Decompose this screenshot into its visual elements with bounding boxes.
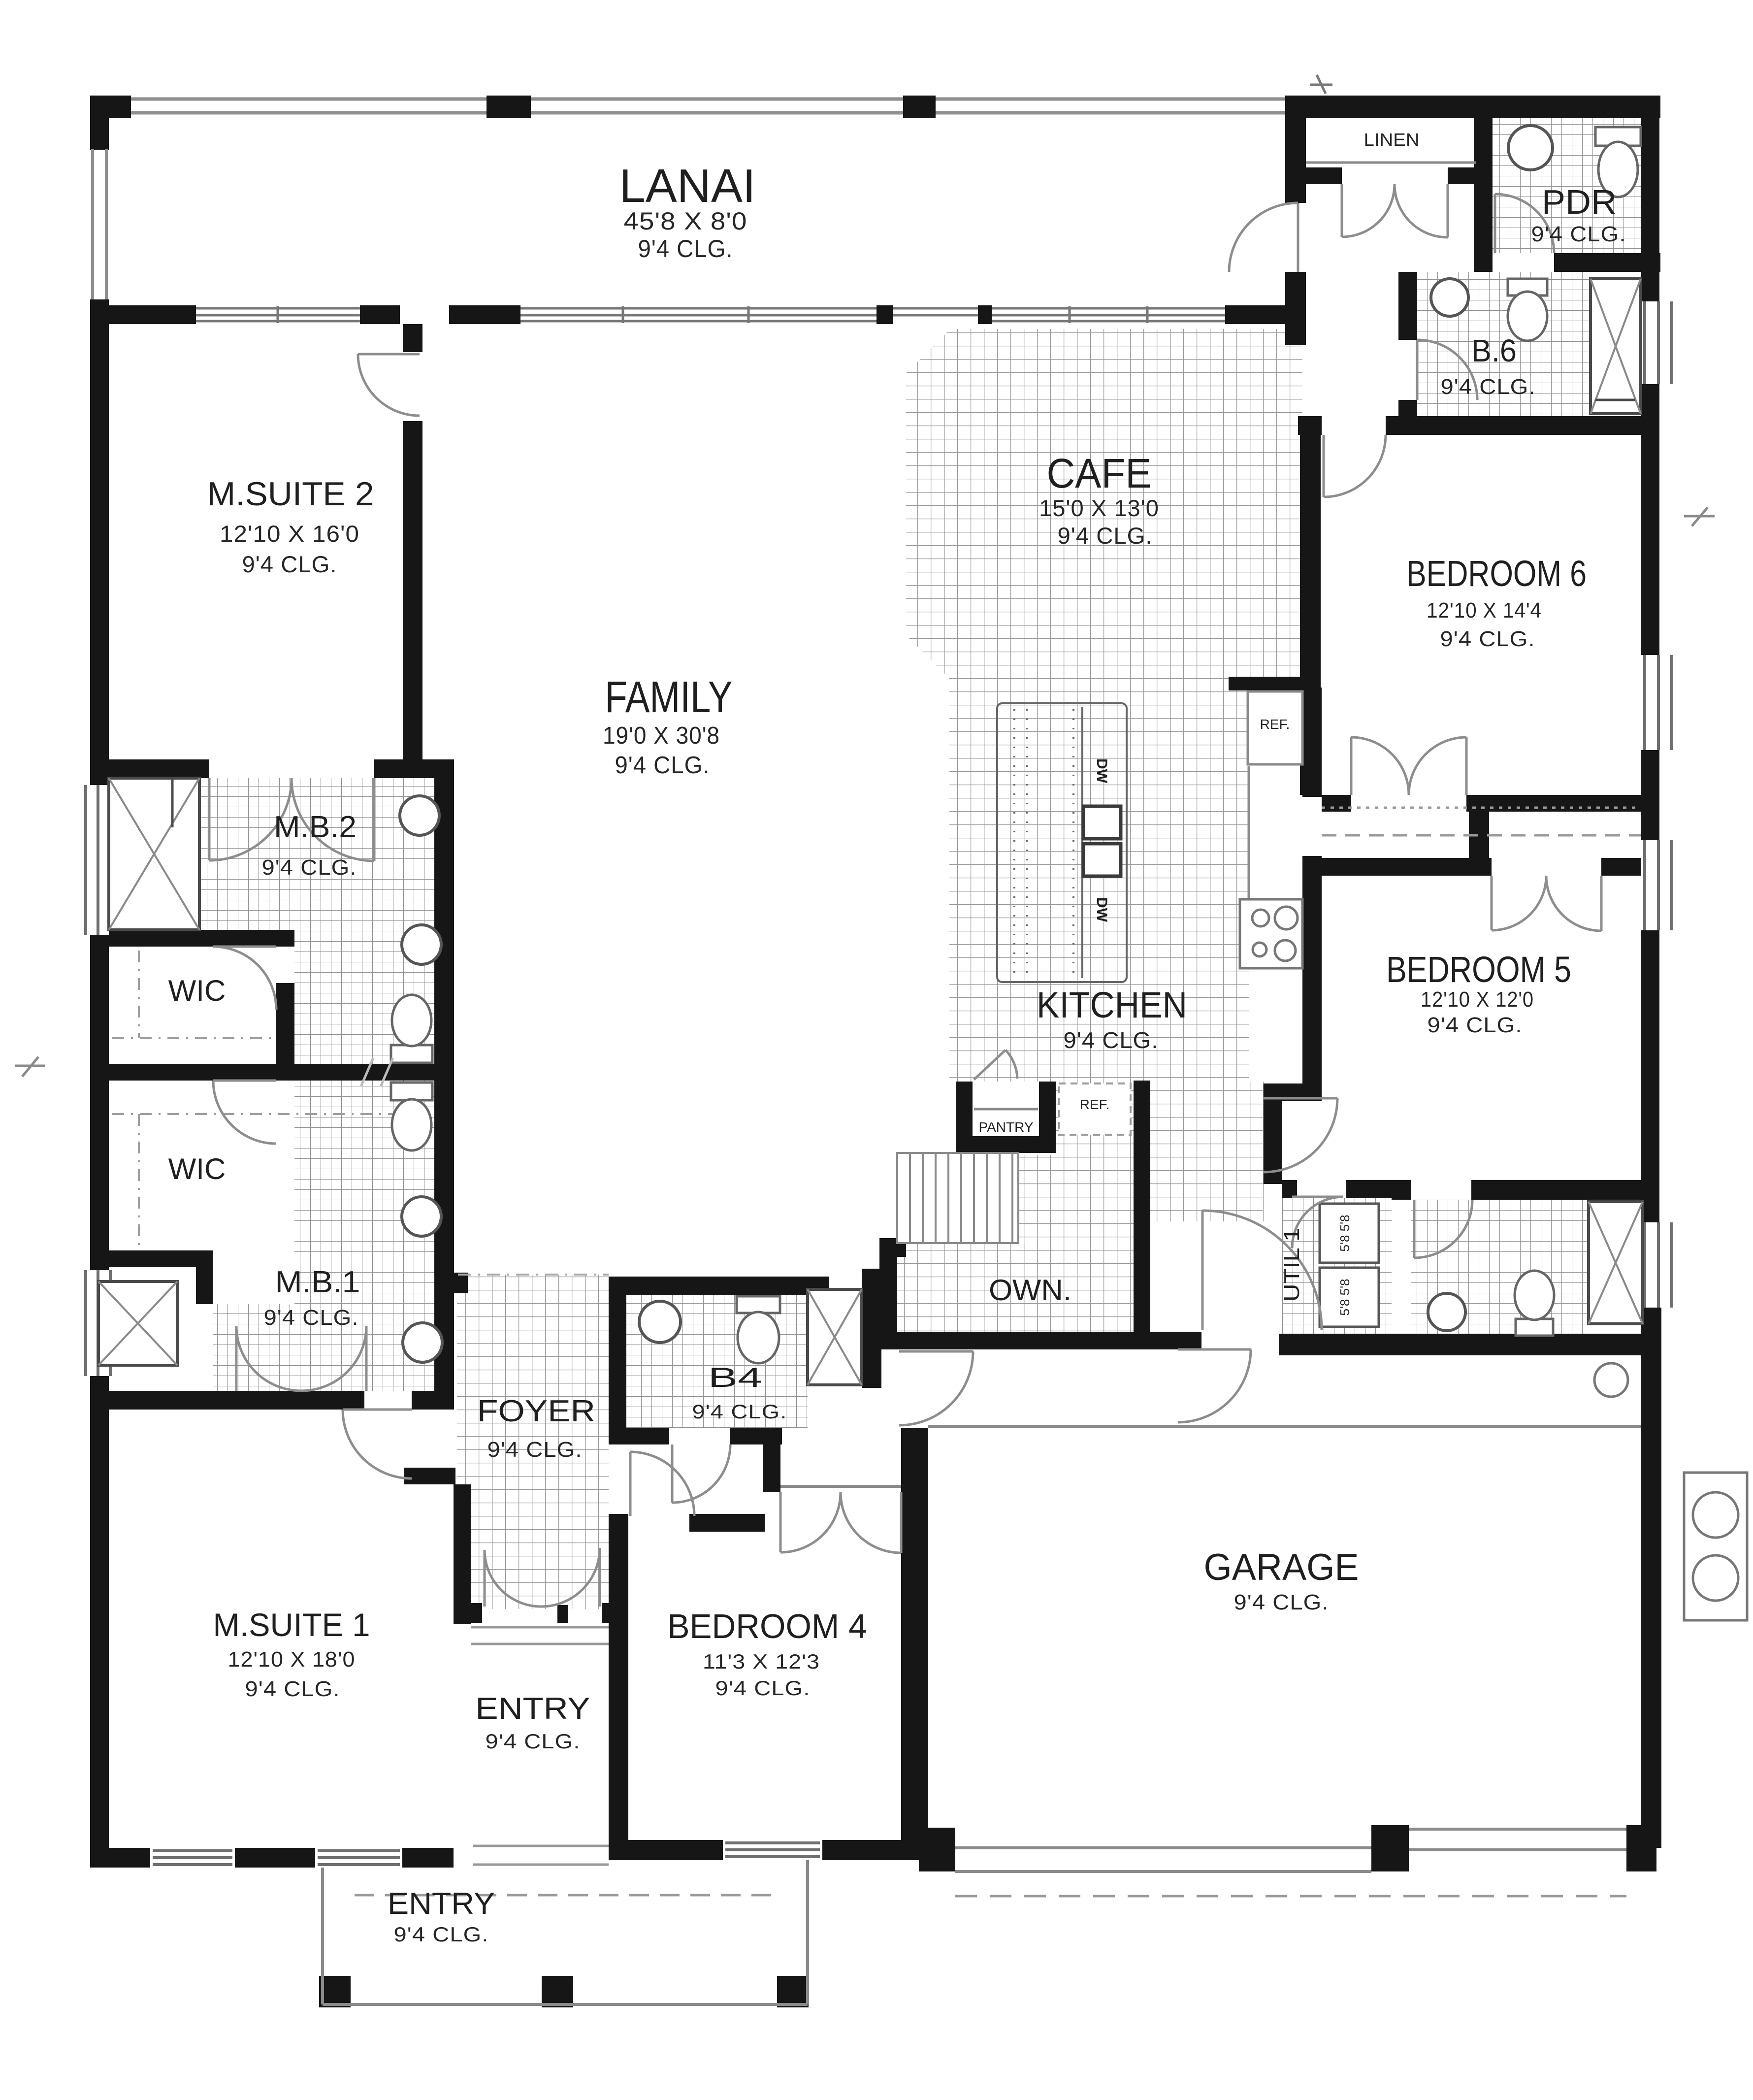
svg-text:9'4 CLG.: 9'4 CLG. bbox=[615, 752, 710, 779]
svg-text:9'4 CLG.: 9'4 CLG. bbox=[1440, 627, 1535, 651]
svg-text:REF.: REF. bbox=[1260, 717, 1290, 732]
svg-text:9'4 CLG.: 9'4 CLG. bbox=[1234, 1590, 1329, 1614]
svg-text:9'4 CLG.: 9'4 CLG. bbox=[1428, 1013, 1523, 1037]
svg-text:PANTRY: PANTRY bbox=[979, 1119, 1034, 1135]
svg-text:9'4 CLG.: 9'4 CLG. bbox=[486, 1730, 581, 1753]
svg-text:12'10 X 16'0: 12'10 X 16'0 bbox=[220, 521, 359, 547]
svg-text:11'3 X 12'3: 11'3 X 12'3 bbox=[703, 1650, 820, 1673]
svg-text:9'4 CLG.: 9'4 CLG. bbox=[715, 1676, 811, 1700]
svg-text:9'4 CLG.: 9'4 CLG. bbox=[242, 551, 337, 577]
svg-text:9'4 CLG.: 9'4 CLG. bbox=[262, 855, 357, 880]
svg-text:ENTRY: ENTRY bbox=[476, 1692, 590, 1726]
svg-text:WIC: WIC bbox=[168, 1152, 226, 1185]
svg-text:M.B.2: M.B.2 bbox=[274, 810, 357, 844]
svg-text:M.SUITE 1: M.SUITE 1 bbox=[213, 1607, 370, 1643]
svg-text:DW: DW bbox=[1094, 758, 1110, 784]
svg-text:ENTRY: ENTRY bbox=[388, 1887, 495, 1921]
svg-text:9'4 CLG.: 9'4 CLG. bbox=[487, 1438, 583, 1462]
svg-text:15'0 X 13'0: 15'0 X 13'0 bbox=[1039, 495, 1159, 521]
svg-text:B4: B4 bbox=[708, 1362, 762, 1393]
svg-text:FAMILY: FAMILY bbox=[605, 673, 733, 722]
svg-text:B.6: B.6 bbox=[1471, 333, 1517, 368]
svg-text:9'4 CLG.: 9'4 CLG. bbox=[1531, 222, 1626, 246]
svg-text:GARAGE: GARAGE bbox=[1204, 1546, 1359, 1588]
svg-text:19'0 X 30'8: 19'0 X 30'8 bbox=[603, 722, 720, 749]
svg-text:5'8 5'8: 5'8 5'8 bbox=[1337, 1215, 1352, 1252]
svg-text:FOYER: FOYER bbox=[477, 1394, 595, 1428]
svg-text:PDR: PDR bbox=[1542, 183, 1617, 221]
svg-text:OWN.: OWN. bbox=[989, 1274, 1071, 1307]
svg-text:CAFE: CAFE bbox=[1047, 450, 1152, 496]
svg-text:BEDROOM 6: BEDROOM 6 bbox=[1406, 553, 1587, 594]
svg-text:9'4 CLG.: 9'4 CLG. bbox=[638, 235, 733, 262]
svg-text:12'10 X 12'0: 12'10 X 12'0 bbox=[1421, 987, 1534, 1012]
svg-text:45'8 X 8'0: 45'8 X 8'0 bbox=[624, 207, 747, 235]
svg-text:LANAI: LANAI bbox=[619, 160, 756, 212]
svg-text:BEDROOM 4: BEDROOM 4 bbox=[668, 1607, 867, 1645]
svg-text:5'8 5'8: 5'8 5'8 bbox=[1337, 1279, 1352, 1316]
svg-text:LINEN: LINEN bbox=[1364, 130, 1420, 150]
svg-text:UTIL 1: UTIL 1 bbox=[1280, 1228, 1304, 1302]
svg-text:KITCHEN: KITCHEN bbox=[1037, 984, 1187, 1025]
svg-text:M.SUITE 2: M.SUITE 2 bbox=[207, 475, 374, 513]
svg-text:DW: DW bbox=[1094, 897, 1110, 922]
svg-text:M.B.1: M.B.1 bbox=[275, 1265, 360, 1299]
svg-text:9'4 CLG.: 9'4 CLG. bbox=[245, 1677, 340, 1701]
svg-text:12'10 X 18'0: 12'10 X 18'0 bbox=[228, 1647, 356, 1672]
svg-text:REF.: REF. bbox=[1080, 1097, 1110, 1112]
svg-text:WIC: WIC bbox=[168, 974, 226, 1007]
svg-text:BEDROOM 5: BEDROOM 5 bbox=[1386, 949, 1571, 990]
svg-text:9'4 CLG.: 9'4 CLG. bbox=[264, 1306, 359, 1330]
svg-text:9'4 CLG.: 9'4 CLG. bbox=[692, 1401, 787, 1423]
svg-text:9'4 CLG.: 9'4 CLG. bbox=[394, 1923, 489, 1946]
svg-text:9'4 CLG.: 9'4 CLG. bbox=[1441, 375, 1536, 399]
svg-text:9'4 CLG.: 9'4 CLG. bbox=[1064, 1027, 1159, 1053]
svg-text:9'4 CLG.: 9'4 CLG. bbox=[1058, 523, 1153, 549]
svg-text:12'10 X 14'4: 12'10 X 14'4 bbox=[1427, 598, 1542, 623]
